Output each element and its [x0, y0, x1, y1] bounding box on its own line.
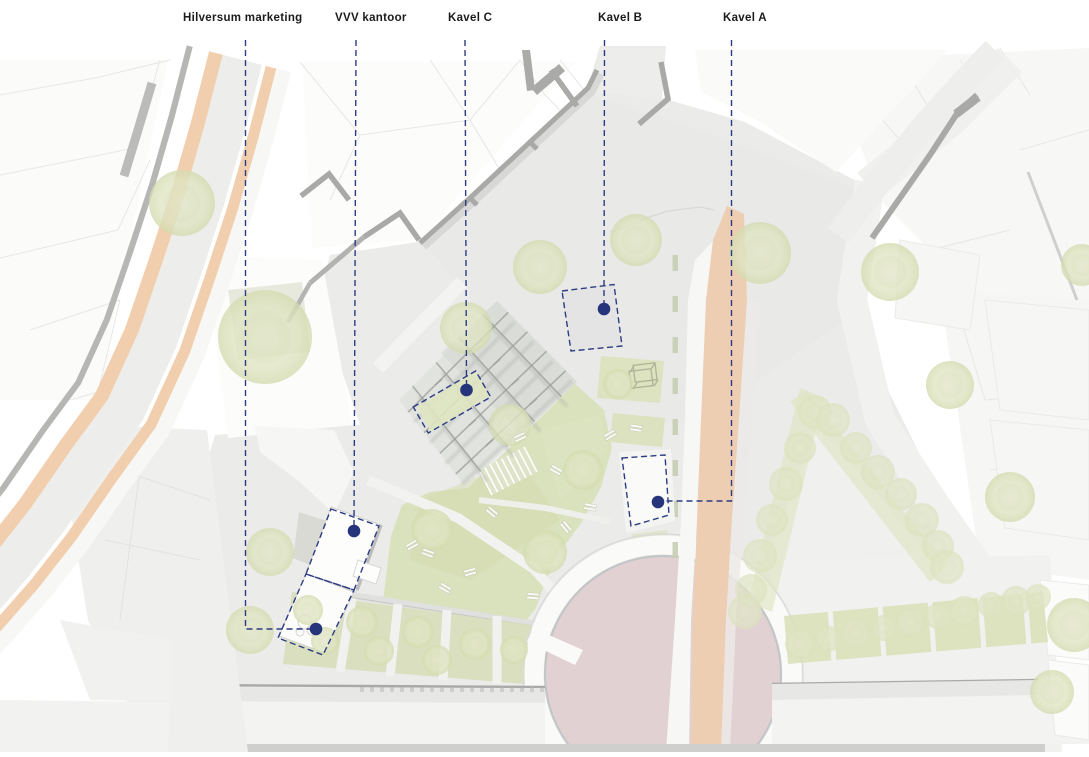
svg-text:Kavel C: Kavel C — [448, 12, 492, 24]
svg-text:VVV kantoor: VVV kantoor — [335, 12, 407, 24]
svg-text:Hilversum marketing: Hilversum marketing — [183, 12, 302, 24]
svg-text:Kavel B: Kavel B — [598, 12, 642, 24]
svg-text:Kavel A: Kavel A — [723, 12, 767, 24]
